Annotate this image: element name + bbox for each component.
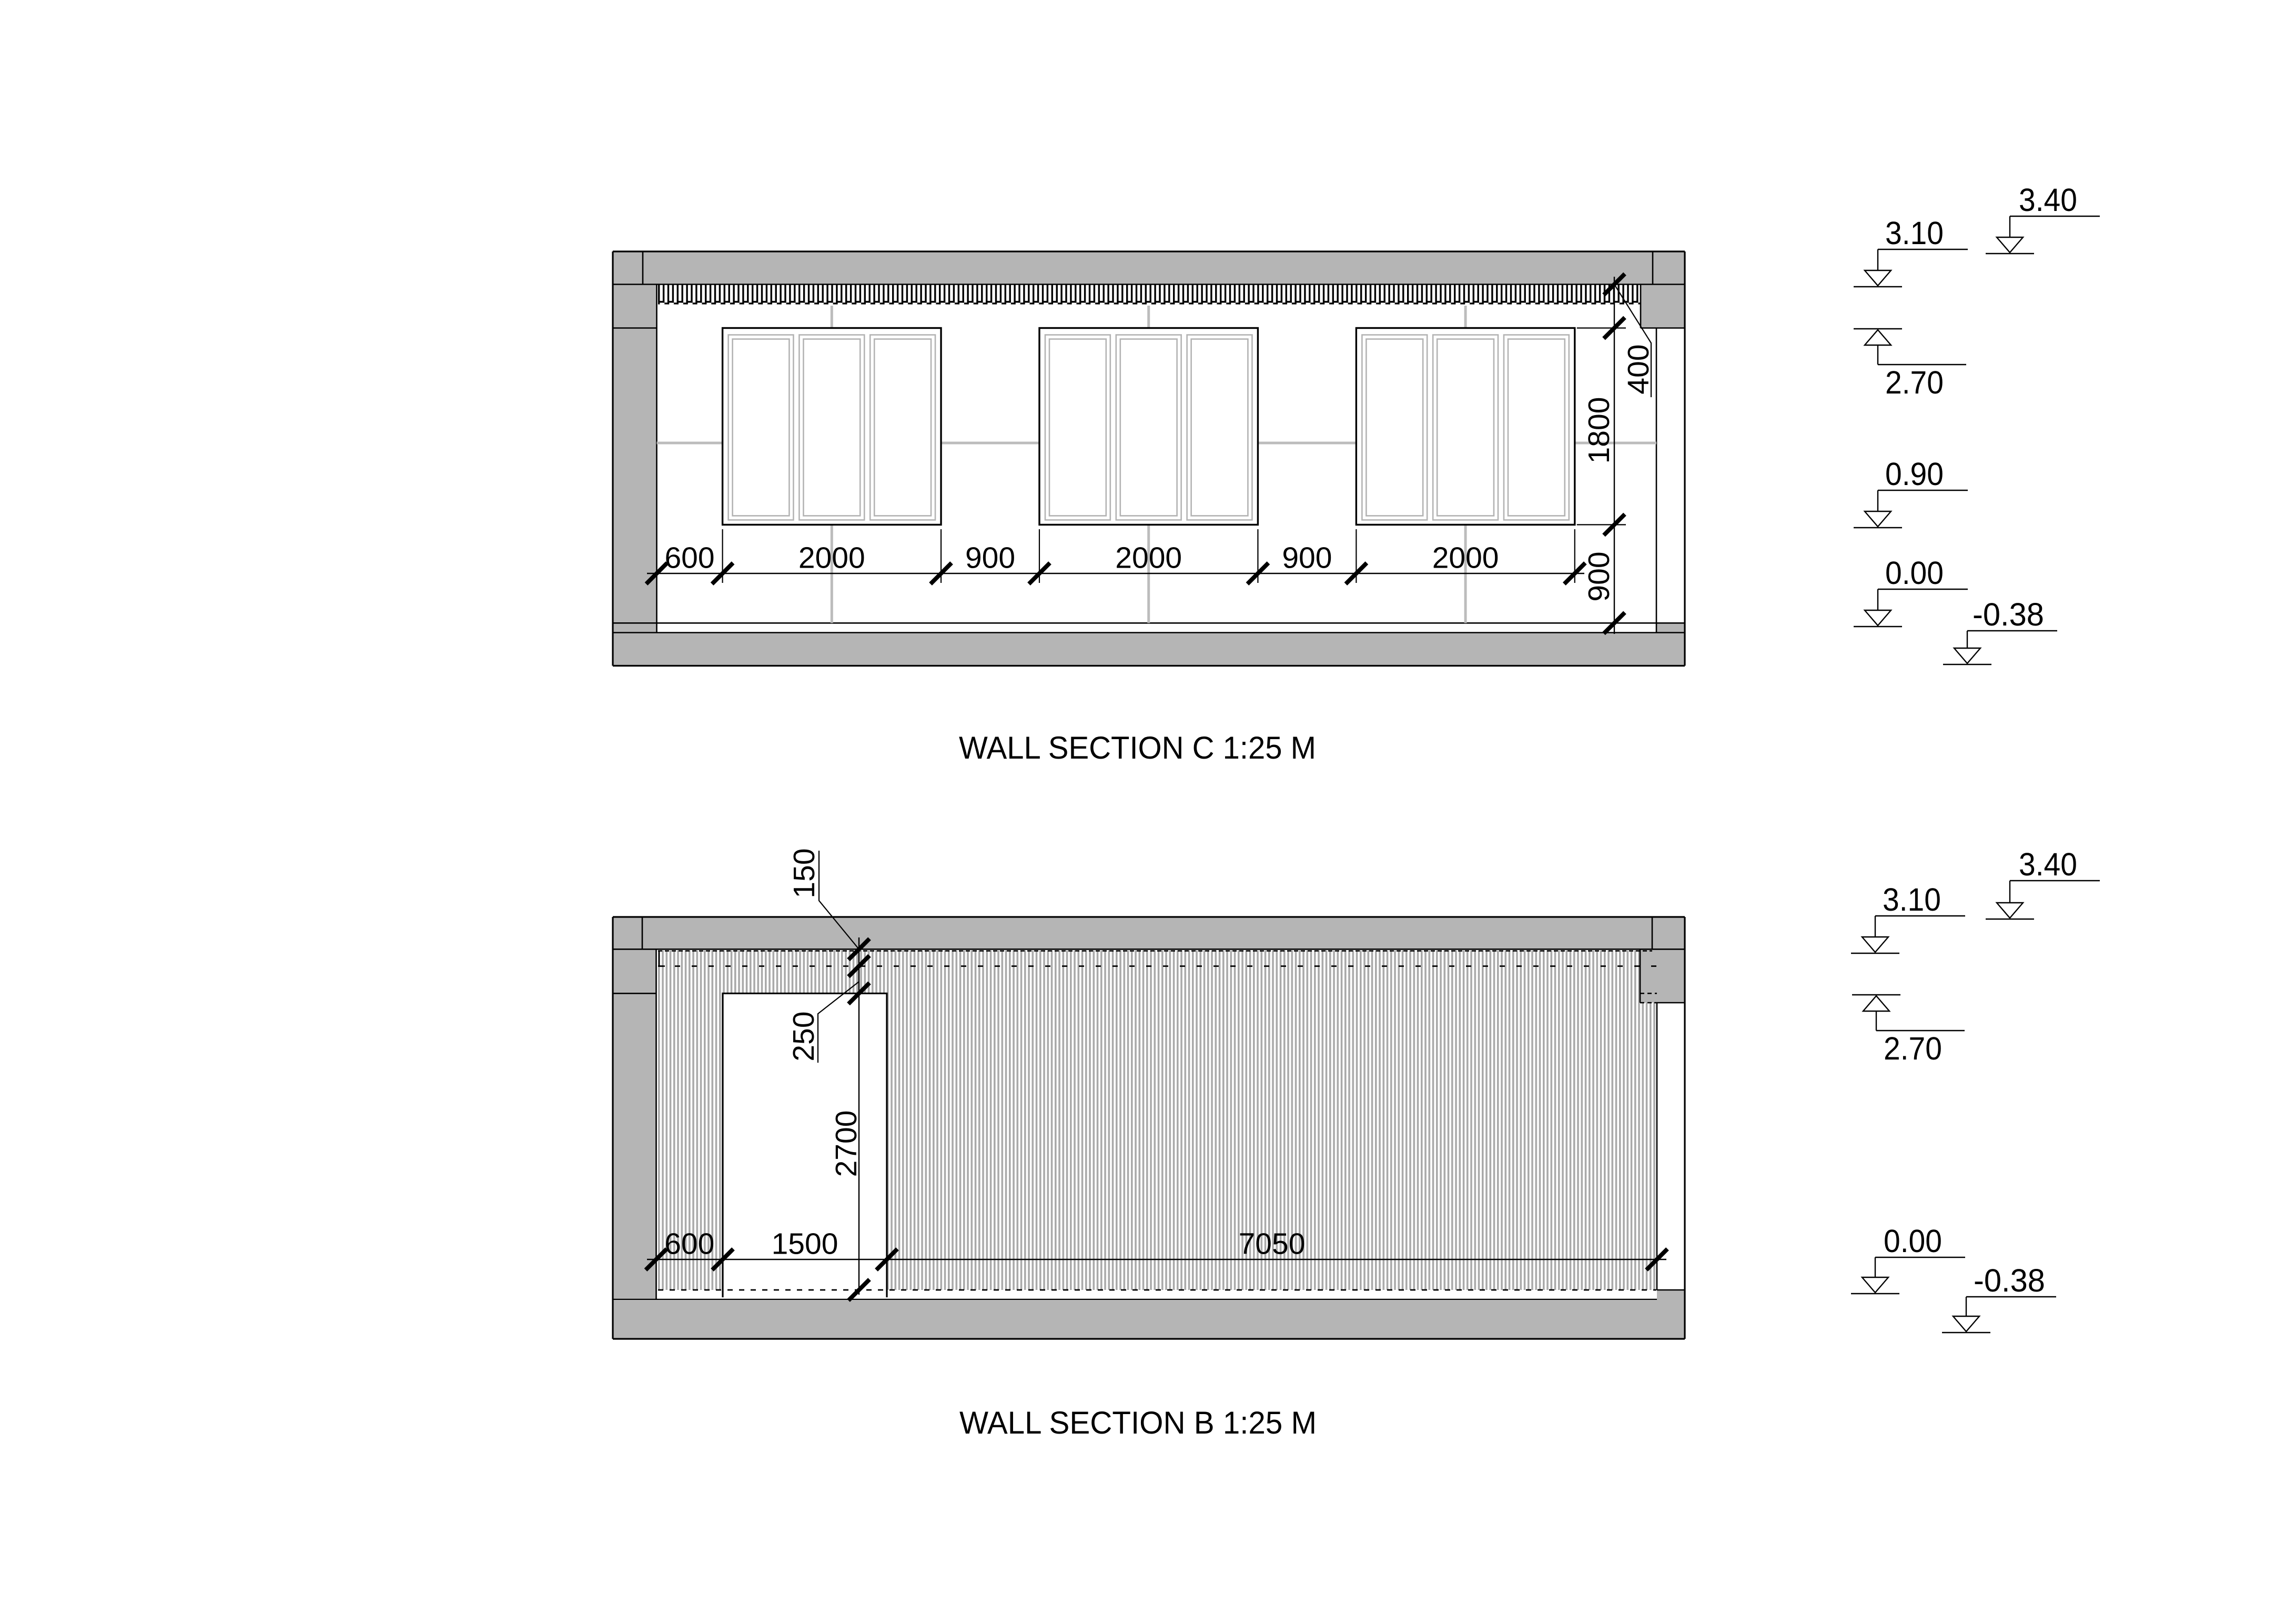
svg-text:600: 600 (664, 1227, 714, 1261)
svg-text:3.40: 3.40 (2019, 846, 2077, 882)
svg-text:900: 900 (965, 541, 1015, 575)
svg-text:2000: 2000 (1115, 541, 1182, 575)
svg-text:2700: 2700 (830, 1111, 863, 1177)
svg-text:0.90: 0.90 (1885, 456, 1944, 492)
svg-text:0.00: 0.00 (1885, 555, 1944, 591)
svg-text:400: 400 (1622, 344, 1655, 394)
svg-text:2000: 2000 (798, 541, 865, 575)
svg-text:WALL SECTION C 1:25 M: WALL SECTION C 1:25 M (959, 730, 1316, 765)
svg-text:1800: 1800 (1582, 397, 1616, 464)
svg-text:2000: 2000 (1432, 541, 1499, 575)
svg-text:3.10: 3.10 (1883, 882, 1941, 917)
svg-text:WALL SECTION B 1:25 M: WALL SECTION B 1:25 M (959, 1405, 1317, 1440)
svg-text:900: 900 (1282, 541, 1332, 575)
svg-text:-0.38: -0.38 (1973, 597, 2044, 632)
svg-text:900: 900 (1582, 551, 1616, 601)
svg-text:3.10: 3.10 (1885, 215, 1944, 251)
svg-text:600: 600 (664, 541, 714, 575)
svg-text:2.70: 2.70 (1884, 1031, 1942, 1066)
svg-text:2.70: 2.70 (1885, 365, 1944, 400)
svg-text:250: 250 (787, 1011, 821, 1061)
svg-text:3.40: 3.40 (2019, 182, 2077, 218)
svg-text:150: 150 (787, 848, 821, 898)
svg-text:7050: 7050 (1239, 1227, 1306, 1261)
svg-text:-0.38: -0.38 (1974, 1263, 2045, 1298)
svg-text:1500: 1500 (772, 1227, 838, 1261)
svg-text:0.00: 0.00 (1884, 1223, 1942, 1259)
